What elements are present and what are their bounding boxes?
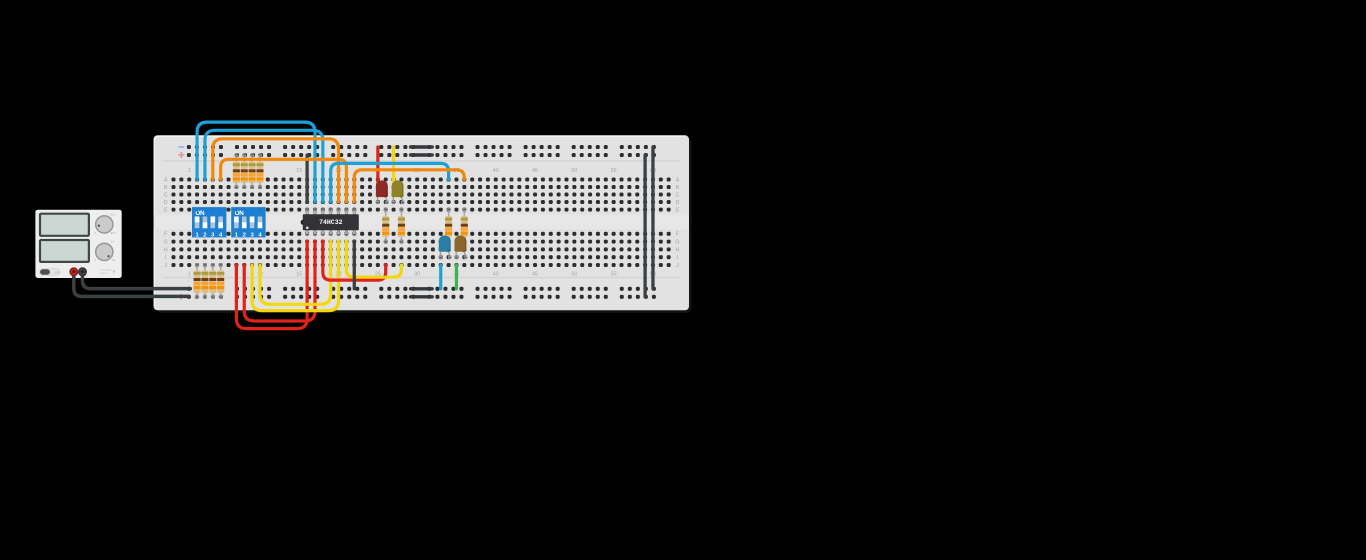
svg-text:E: E bbox=[676, 208, 680, 214]
svg-text:B: B bbox=[676, 185, 680, 191]
svg-text:A: A bbox=[676, 177, 680, 183]
svg-text:A: A bbox=[164, 177, 168, 183]
svg-text:30 V: 30 V bbox=[111, 232, 116, 235]
svg-text:15: 15 bbox=[296, 168, 302, 174]
svg-text:1: 1 bbox=[188, 168, 191, 174]
svg-text:C: C bbox=[675, 192, 679, 198]
svg-text:50: 50 bbox=[571, 168, 577, 174]
svg-text:55: 55 bbox=[611, 168, 617, 174]
svg-text:C: C bbox=[164, 192, 168, 198]
svg-text:I: I bbox=[165, 255, 167, 261]
svg-text:I: I bbox=[677, 255, 679, 261]
svg-text:30: 30 bbox=[414, 271, 420, 277]
svg-text:H: H bbox=[675, 247, 679, 253]
svg-text:J: J bbox=[164, 263, 167, 269]
svg-text:45: 45 bbox=[532, 168, 538, 174]
svg-text:1 A: 1 A bbox=[111, 240, 115, 243]
svg-text:H: H bbox=[164, 247, 168, 253]
svg-text:3 A: 3 A bbox=[111, 259, 115, 262]
svg-text:10 V: 10 V bbox=[110, 213, 115, 216]
svg-text:45: 45 bbox=[532, 271, 538, 277]
svg-text:J: J bbox=[676, 263, 679, 269]
svg-text:G: G bbox=[675, 240, 679, 246]
svg-text:D: D bbox=[675, 200, 679, 206]
svg-text:40: 40 bbox=[493, 168, 499, 174]
svg-text:OFF: OFF bbox=[55, 271, 60, 274]
svg-text:B: B bbox=[164, 185, 168, 191]
svg-text:15: 15 bbox=[296, 271, 302, 277]
svg-text:1: 1 bbox=[188, 271, 191, 277]
svg-text:55: 55 bbox=[611, 271, 617, 277]
svg-text:G: G bbox=[164, 240, 168, 246]
svg-text:50: 50 bbox=[571, 271, 577, 277]
svg-text:E: E bbox=[164, 208, 168, 214]
svg-text:40: 40 bbox=[493, 271, 499, 277]
svg-text:0-30V: 0-30V bbox=[101, 271, 108, 275]
svg-text:D: D bbox=[164, 200, 168, 206]
svg-text:74HC32: 74HC32 bbox=[319, 219, 343, 226]
